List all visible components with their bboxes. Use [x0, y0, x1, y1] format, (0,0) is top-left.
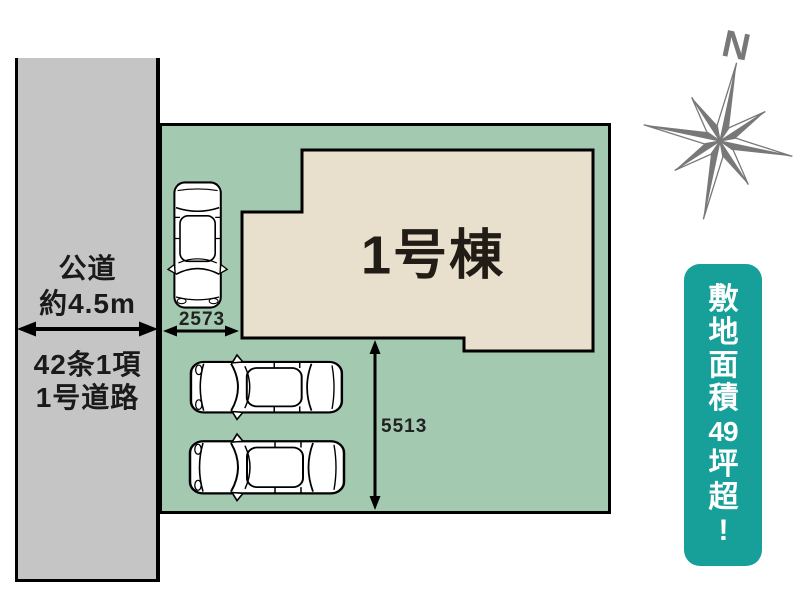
compass-north-label: N	[718, 23, 754, 70]
badge-char: 49	[708, 415, 737, 448]
building-number-label: 1号棟	[361, 211, 505, 290]
public-road-strip	[15, 58, 160, 582]
badge-char: 地	[709, 316, 738, 349]
badge-char: 面	[709, 349, 738, 382]
compass-icon: N	[627, 10, 800, 234]
badge-char: 積	[709, 382, 738, 415]
badge-char: 超	[709, 481, 738, 514]
badge-char: 敷	[709, 283, 738, 316]
road-type-label-line1: 42条1項	[15, 348, 160, 381]
badge-char: 坪	[709, 448, 738, 481]
badge-char: !	[719, 514, 728, 547]
site-area-badge: 敷 地 面 積 49 坪 超 !	[684, 264, 762, 566]
road-name-label: 公道	[15, 252, 160, 285]
road-type-label-line2: 1号道路	[15, 381, 160, 414]
parking-width-dimension: 2573	[166, 309, 238, 331]
road-width-label: 約4.5m	[15, 287, 160, 320]
parking-depth-dimension: 5513	[381, 416, 427, 438]
